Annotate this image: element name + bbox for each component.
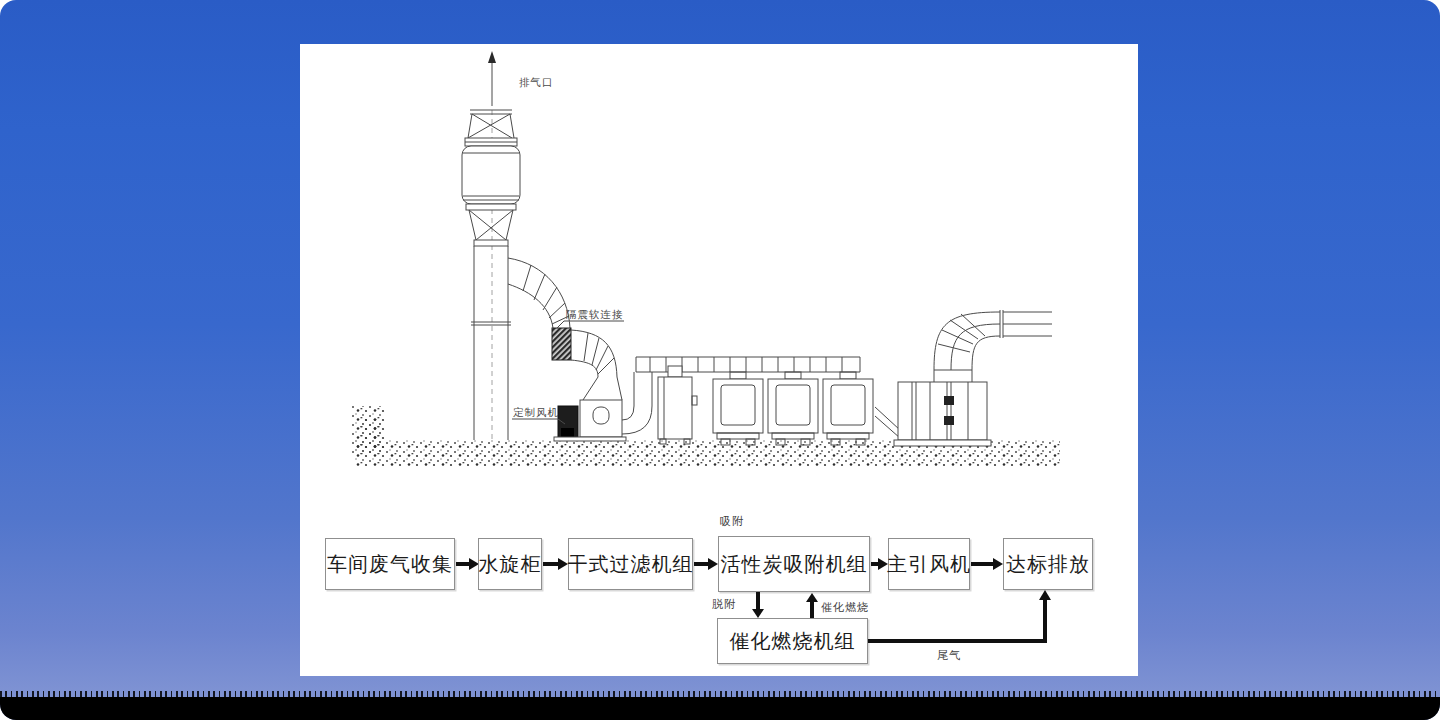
flow-box-compliant-discharge: 达标排放 [1003,538,1093,590]
vibration-isolator-label: 隔震软连接 [566,308,624,320]
flow-box-activated-carbon-unit: 活性炭吸附机组 [718,536,870,592]
right-unit [894,310,1052,446]
adsorption-boxes [713,372,900,445]
flow-box-dry-filter-unit: 干式过滤机组 [568,538,693,590]
stack-duct [508,258,622,400]
diagram-labels: 排气口 隔震软连接 定制风机 [513,76,624,418]
up-arrow-icon [488,51,496,63]
flow-arrow-1 [456,562,469,566]
exhaust-outlet-label: 排气口 [519,76,554,88]
flow-box-catalytic-combustion-unit: 催化燃烧机组 [717,618,868,664]
flexible-coupling [552,328,571,360]
slide-background: 排气口 隔震软连接 定制风机 吸附 车间废气收集 水旋柜 干式过滤机组 活性炭吸… [0,0,1440,720]
catalytic-combustion-annotation: 催化燃烧 [821,600,869,615]
flow-arrow-3 [694,562,708,566]
fan-unit [554,400,626,441]
tail-gas-line-horizontal [868,639,1047,643]
chimney-stack [462,51,520,440]
tail-gas-annotation: 尾气 [937,648,961,663]
tail-gas-line-vertical [1043,599,1047,640]
flow-arrow-2 [543,562,558,566]
flow-box-main-draft-fan: 主引风机 [888,538,970,590]
white-panel: 排气口 隔震软连接 定制风机 吸附 车间废气收集 水旋柜 干式过滤机组 活性炭吸… [300,44,1138,676]
catalytic-return-arrow [810,602,814,618]
desorption-arrow [756,592,760,609]
flow-box-water-spin-cabinet: 水旋柜 [478,538,542,590]
flow-arrow-4 [871,562,878,566]
desorption-annotation: 脱附 [712,597,736,612]
custom-fan-label: 定制风机 [513,406,559,418]
flow-box-workshop-gas-collection: 车间废气收集 [325,538,455,590]
tail-gas-arrowhead [1039,590,1051,600]
flow-arrow-5 [971,562,993,566]
footer-black-bar [0,697,1440,720]
adsorption-annotation: 吸附 [720,514,744,529]
filter-tank [658,366,697,444]
